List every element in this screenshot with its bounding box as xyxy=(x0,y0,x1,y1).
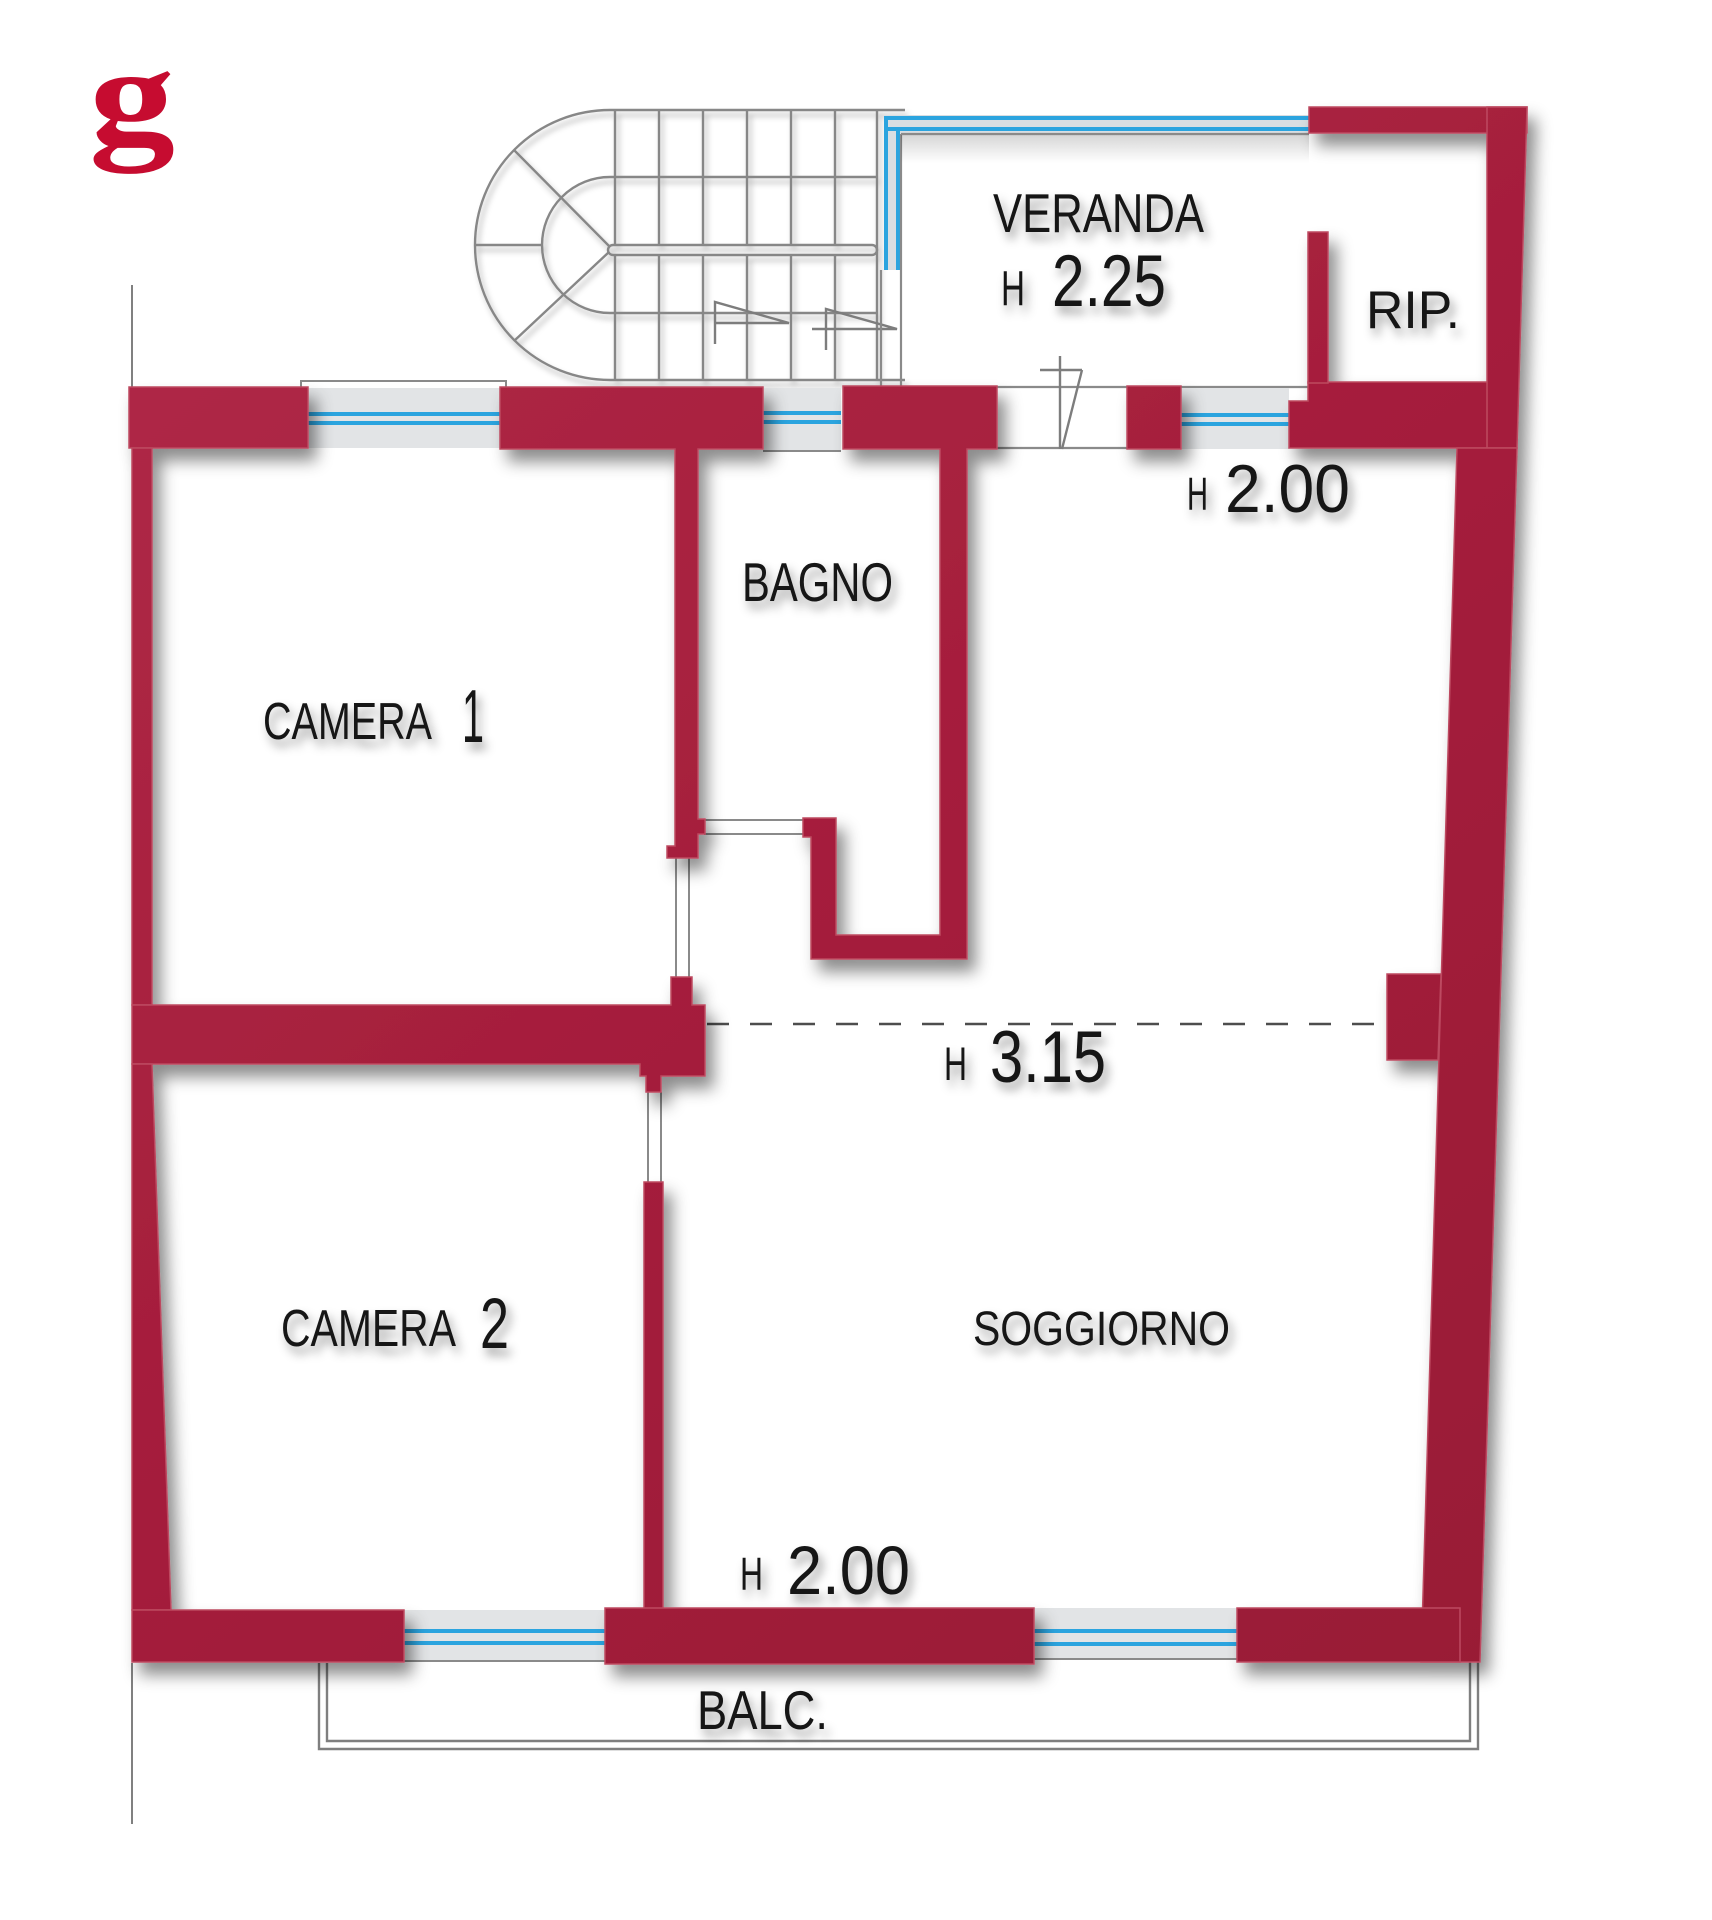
svg-text:1: 1 xyxy=(462,674,484,758)
svg-text:RIP.: RIP. xyxy=(1366,281,1460,340)
svg-text:BAGNO: BAGNO xyxy=(742,551,893,613)
svg-text:2: 2 xyxy=(480,1285,509,1364)
svg-text:CAMERA: CAMERA xyxy=(281,1300,456,1358)
svg-text:CAMERA: CAMERA xyxy=(263,693,432,751)
svg-text:2.00: 2.00 xyxy=(1225,451,1350,527)
svg-text:2.00: 2.00 xyxy=(787,1532,910,1609)
svg-text:VERANDA: VERANDA xyxy=(993,182,1204,244)
svg-text:H: H xyxy=(944,1037,967,1090)
svg-text:H: H xyxy=(1187,468,1208,520)
svg-text:2.25: 2.25 xyxy=(1052,241,1166,322)
svg-text:H: H xyxy=(1001,262,1025,316)
svg-text:BALC.: BALC. xyxy=(697,1679,828,1741)
svg-text:SOGGIORNO: SOGGIORNO xyxy=(973,1303,1230,1356)
svg-text:3.15: 3.15 xyxy=(990,1017,1106,1098)
svg-text:g: g xyxy=(89,19,175,174)
svg-text:H: H xyxy=(740,1548,763,1600)
